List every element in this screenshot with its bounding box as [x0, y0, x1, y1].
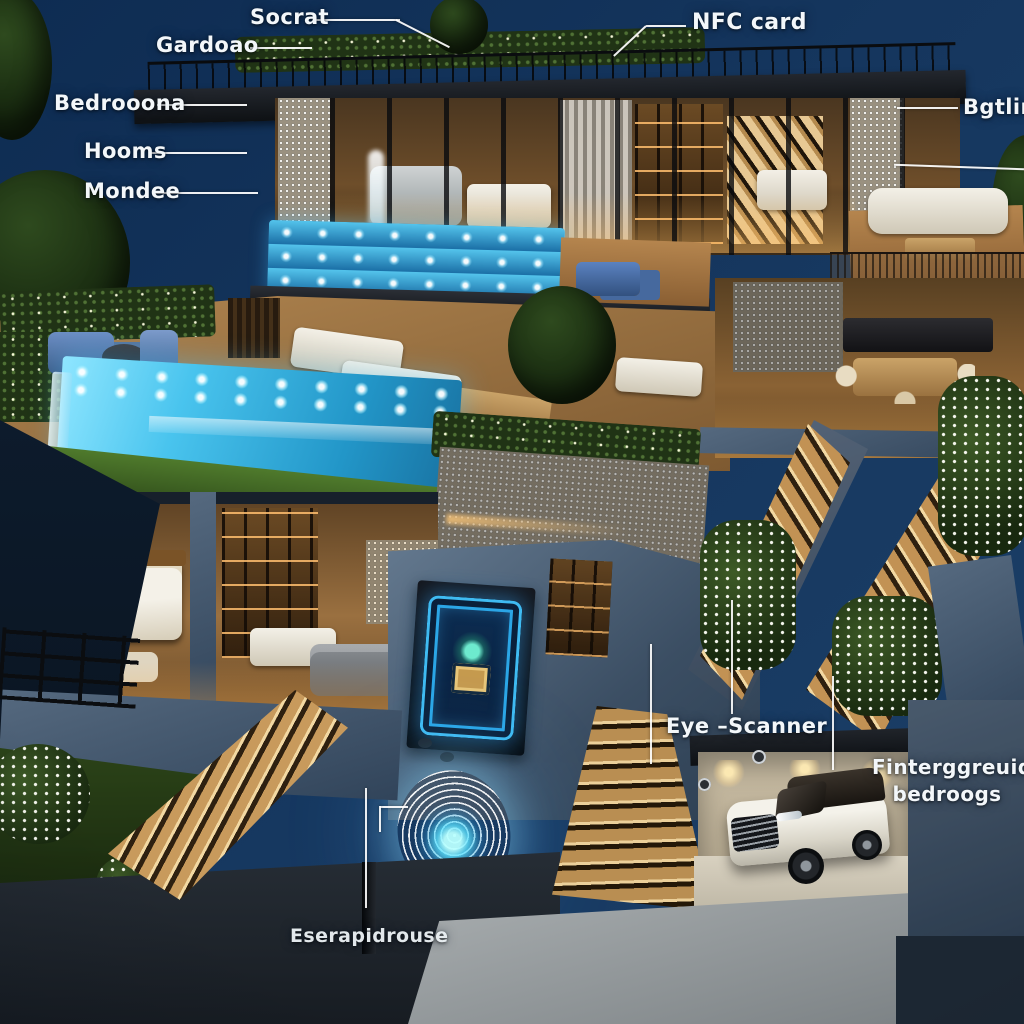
stairs-planter-3	[938, 376, 1024, 556]
leader-eyescanner-left	[650, 644, 652, 764]
daybed-right	[615, 357, 703, 397]
leader-nfc	[646, 25, 686, 27]
kitchen-island	[843, 318, 993, 352]
stone-feature-wall	[733, 282, 843, 372]
leader-eyescanner-top	[731, 600, 733, 714]
lounger-blue-pair	[576, 262, 640, 296]
label-fingerprint-line2: bedroogs	[893, 782, 1002, 806]
right-retaining-wall	[908, 700, 1024, 960]
aquarium-inner-glass	[149, 416, 449, 445]
label-fingerprint-line1: Finterggreuid	[872, 755, 1024, 779]
cabana-slats	[228, 298, 280, 358]
leader-fingerprint-h	[380, 806, 408, 808]
suv-grille	[730, 814, 779, 853]
leader-fingerprint-v	[379, 806, 381, 832]
stairs-planter-1	[700, 520, 796, 670]
label-fingerprint: Finterggreuid bedroogs	[872, 754, 1022, 808]
terrace-sofa	[868, 188, 1008, 234]
basement-niche-shelf	[546, 558, 613, 657]
label-bathing: Bgtlin	[963, 95, 1024, 119]
leader-bathing	[897, 107, 958, 109]
cutaway-house-illustration: Socrat Gardoao NFC card Bedrooona Hooms …	[0, 0, 1024, 1024]
smart-panel-keypad	[451, 663, 491, 696]
wall-sconce-1	[418, 738, 432, 748]
leader-garage	[250, 47, 312, 49]
tree-top-left	[0, 0, 52, 140]
label-nfc-card: NFC card	[692, 10, 807, 35]
leader-escape	[365, 788, 367, 908]
label-bedrooms: Bedrooona	[54, 91, 186, 115]
tree-mid-deck	[508, 286, 616, 404]
garage-badge-icon	[752, 750, 766, 764]
label-rooms: Hooms	[84, 139, 167, 163]
leader-eyescanner-right	[832, 676, 834, 770]
suv-wheel-front	[788, 848, 824, 884]
garage-badge-icon-2	[698, 778, 711, 791]
stairs-planter-2	[832, 596, 942, 716]
label-garage: Gardoao	[156, 33, 259, 57]
bottom-right-dark	[896, 936, 1024, 1024]
label-secret: Socrat	[250, 5, 329, 29]
label-escape: Eserapidrouse	[290, 925, 448, 947]
railing-left	[0, 627, 140, 708]
label-mondee: Mondee	[84, 179, 180, 203]
label-eye-scanner: Eye –Scanner	[666, 714, 827, 738]
suv-wheel-rear	[852, 830, 882, 860]
